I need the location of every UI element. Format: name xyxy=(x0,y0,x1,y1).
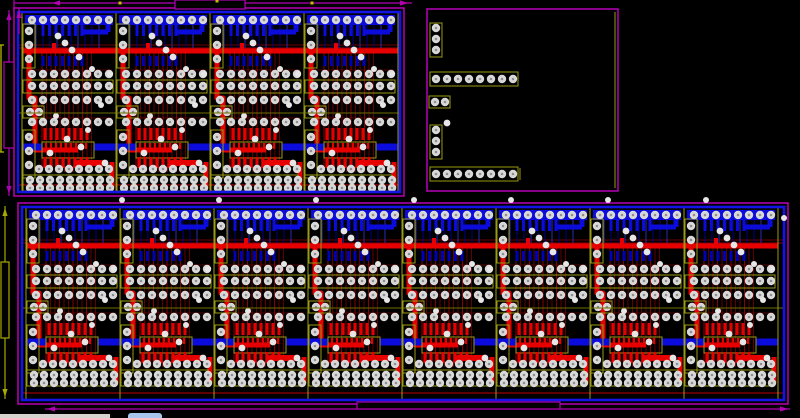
pad-hole xyxy=(741,374,744,377)
via[interactable] xyxy=(360,144,367,151)
pad-hole xyxy=(391,179,394,182)
pad-hole xyxy=(582,363,585,366)
via[interactable] xyxy=(623,228,630,235)
via[interactable] xyxy=(715,308,721,314)
via[interactable] xyxy=(465,322,471,328)
via[interactable] xyxy=(738,249,745,256)
pad-hole xyxy=(112,214,115,217)
via[interactable] xyxy=(335,113,341,119)
via[interactable] xyxy=(179,127,185,133)
pad-hole xyxy=(92,363,95,366)
via[interactable] xyxy=(268,249,275,256)
pad-hole xyxy=(654,214,657,217)
pad-hole xyxy=(297,187,300,190)
via[interactable] xyxy=(411,197,417,203)
via[interactable] xyxy=(273,127,279,133)
via[interactable] xyxy=(646,339,653,346)
pad-hole xyxy=(89,179,92,182)
via[interactable] xyxy=(250,40,257,47)
via[interactable] xyxy=(254,235,261,242)
via[interactable] xyxy=(119,197,125,203)
via[interactable] xyxy=(192,102,198,108)
pad-hole xyxy=(136,19,139,22)
via[interactable] xyxy=(760,297,766,303)
component-pad-pair-horizontal[interactable] xyxy=(429,96,450,108)
via[interactable] xyxy=(55,33,62,40)
pad-hole xyxy=(372,280,375,283)
pad-hole xyxy=(310,44,313,47)
via[interactable] xyxy=(621,308,627,314)
via[interactable] xyxy=(295,71,301,77)
via[interactable] xyxy=(339,308,345,314)
via[interactable] xyxy=(653,322,659,328)
via[interactable] xyxy=(747,322,753,328)
via[interactable] xyxy=(252,136,259,143)
pad-hole xyxy=(267,280,270,283)
pad-hole xyxy=(549,316,552,319)
via[interactable] xyxy=(630,235,637,242)
via[interactable] xyxy=(362,249,369,256)
via[interactable] xyxy=(371,322,377,328)
via[interactable] xyxy=(183,322,189,328)
pad-hole xyxy=(280,363,283,366)
pad-hole xyxy=(241,19,244,22)
pad-hole xyxy=(97,99,100,102)
pad-hole xyxy=(693,316,696,319)
via[interactable] xyxy=(76,54,83,61)
pcb-module[interactable] xyxy=(214,211,308,387)
via[interactable] xyxy=(469,261,475,267)
via[interactable] xyxy=(731,242,738,249)
pad-hole xyxy=(147,382,150,385)
pad-hole xyxy=(726,268,729,271)
pad-hole xyxy=(108,168,111,171)
pad-hole xyxy=(466,268,469,271)
component-header-8-horizontal[interactable] xyxy=(430,167,520,181)
via[interactable] xyxy=(380,102,386,108)
via[interactable] xyxy=(183,66,189,72)
pad-hole xyxy=(562,363,565,366)
pcb-module[interactable] xyxy=(304,16,398,192)
pad-hole xyxy=(477,214,480,217)
via[interactable] xyxy=(675,266,681,272)
via[interactable] xyxy=(666,297,672,303)
via[interactable] xyxy=(444,120,451,127)
via[interactable] xyxy=(508,197,514,203)
pad-hole xyxy=(435,140,438,143)
via[interactable] xyxy=(205,266,211,272)
via[interactable] xyxy=(333,345,340,352)
via[interactable] xyxy=(348,235,355,242)
pad-hole xyxy=(53,85,56,88)
via[interactable] xyxy=(384,160,391,167)
via[interactable] xyxy=(709,345,716,352)
pad-hole xyxy=(433,280,436,283)
pad-hole xyxy=(206,214,209,217)
pcb-module[interactable] xyxy=(684,211,778,387)
pad-hole xyxy=(582,316,585,319)
via[interactable] xyxy=(245,308,251,314)
via[interactable] xyxy=(264,54,271,61)
pad-hole xyxy=(180,121,183,124)
pad-hole xyxy=(715,280,718,283)
pad-hole xyxy=(241,374,244,377)
via[interactable] xyxy=(521,345,528,352)
bottom-left-height-dimension[interactable] xyxy=(1,206,9,399)
via[interactable] xyxy=(769,266,775,272)
via[interactable] xyxy=(68,331,75,338)
via[interactable] xyxy=(615,345,622,352)
pad-hole xyxy=(177,374,180,377)
pad-hole xyxy=(726,316,729,319)
via[interactable] xyxy=(196,160,203,167)
pad-hole xyxy=(125,73,128,76)
via[interactable] xyxy=(107,71,113,77)
via[interactable] xyxy=(82,339,89,346)
via[interactable] xyxy=(156,40,163,47)
via[interactable] xyxy=(717,228,724,235)
top-left-module-array[interactable] xyxy=(14,8,404,196)
pad-hole xyxy=(234,268,237,271)
pad-hole xyxy=(457,78,460,81)
via[interactable] xyxy=(147,113,153,119)
pad-hole xyxy=(206,294,209,297)
pad-hole xyxy=(310,136,313,139)
pcb-module[interactable] xyxy=(308,211,402,387)
via[interactable] xyxy=(145,345,152,352)
via[interactable] xyxy=(80,249,87,256)
via[interactable] xyxy=(73,242,80,249)
pad-hole xyxy=(636,363,639,366)
via[interactable] xyxy=(172,144,179,151)
pad-hole xyxy=(126,239,129,242)
via[interactable] xyxy=(149,33,156,40)
via[interactable] xyxy=(487,266,493,272)
pcb-module[interactable] xyxy=(26,211,120,387)
via[interactable] xyxy=(536,235,543,242)
via[interactable] xyxy=(724,235,731,242)
via[interactable] xyxy=(235,150,242,157)
via[interactable] xyxy=(51,345,58,352)
via[interactable] xyxy=(703,197,709,203)
pad-hole xyxy=(83,382,86,385)
via[interactable] xyxy=(299,266,305,272)
pad-hole xyxy=(435,38,438,41)
pad-hole xyxy=(129,214,132,217)
via[interactable] xyxy=(78,144,85,151)
pad-hole xyxy=(335,73,338,76)
via[interactable] xyxy=(151,308,157,314)
pad-hole xyxy=(617,374,620,377)
via[interactable] xyxy=(167,242,174,249)
via[interactable] xyxy=(160,235,167,242)
pcb-editor-canvas[interactable] xyxy=(0,0,800,418)
top-left-height-dimension[interactable] xyxy=(4,10,14,196)
via[interactable] xyxy=(286,102,292,108)
via[interactable] xyxy=(174,249,181,256)
pad-hole xyxy=(109,179,112,182)
via[interactable] xyxy=(93,261,99,267)
dimension-text-box[interactable] xyxy=(175,0,245,9)
pad-hole xyxy=(158,19,161,22)
pad-hole xyxy=(477,268,480,271)
pad-hole xyxy=(223,268,226,271)
via[interactable] xyxy=(163,47,170,54)
via[interactable] xyxy=(364,339,371,346)
via[interactable] xyxy=(57,308,63,314)
pad-hole xyxy=(444,268,447,271)
via[interactable] xyxy=(375,261,381,267)
via[interactable] xyxy=(196,297,202,303)
pad-hole xyxy=(643,294,646,297)
via[interactable] xyxy=(247,228,254,235)
pad-hole xyxy=(62,363,65,366)
pad-hole xyxy=(147,85,150,88)
via[interactable] xyxy=(637,242,644,249)
via[interactable] xyxy=(367,127,373,133)
pad-hole xyxy=(446,173,449,176)
via[interactable] xyxy=(644,249,651,256)
component-header-8-horizontal[interactable] xyxy=(430,72,518,86)
via[interactable] xyxy=(346,136,353,143)
pad-hole xyxy=(167,374,170,377)
via[interactable] xyxy=(277,66,283,72)
via[interactable] xyxy=(158,136,165,143)
pcb-module[interactable] xyxy=(116,16,210,192)
via[interactable] xyxy=(329,150,336,157)
pad-hole xyxy=(241,382,244,385)
pad-hole xyxy=(173,268,176,271)
via[interactable] xyxy=(111,266,117,272)
pad-hole xyxy=(151,316,154,319)
via[interactable] xyxy=(358,54,365,61)
via[interactable] xyxy=(442,235,449,242)
via[interactable] xyxy=(162,331,169,338)
via[interactable] xyxy=(389,71,395,77)
via[interactable] xyxy=(572,297,578,303)
pcb-module[interactable] xyxy=(590,211,684,387)
pad-hole xyxy=(741,382,744,385)
pad-hole xyxy=(365,382,368,385)
via[interactable] xyxy=(290,160,297,167)
via[interactable] xyxy=(478,297,484,303)
pad-hole xyxy=(503,374,506,377)
pad-hole xyxy=(516,268,519,271)
pad-hole xyxy=(32,253,35,256)
via[interactable] xyxy=(257,47,264,54)
via[interactable] xyxy=(281,261,287,267)
via[interactable] xyxy=(344,40,351,47)
via[interactable] xyxy=(176,339,183,346)
via[interactable] xyxy=(201,71,207,77)
pad-hole xyxy=(216,58,219,61)
via[interactable] xyxy=(538,331,545,338)
pcb-module[interactable] xyxy=(402,211,496,387)
via[interactable] xyxy=(64,136,71,143)
pad-hole xyxy=(384,363,387,366)
via[interactable] xyxy=(550,249,557,256)
via[interactable] xyxy=(527,308,533,314)
via[interactable] xyxy=(751,261,757,267)
via[interactable] xyxy=(261,242,268,249)
component-via[interactable] xyxy=(444,120,451,127)
top-right-breakout-board[interactable] xyxy=(427,9,618,191)
pcb-module[interactable] xyxy=(120,211,214,387)
via[interactable] xyxy=(605,197,611,203)
pad-hole xyxy=(35,294,38,297)
pad-hole xyxy=(449,374,452,377)
via[interactable] xyxy=(341,228,348,235)
via[interactable] xyxy=(187,261,193,267)
via[interactable] xyxy=(89,322,95,328)
pad-hole xyxy=(390,121,393,124)
via[interactable] xyxy=(552,339,559,346)
pad-hole xyxy=(502,359,505,362)
via[interactable] xyxy=(482,355,489,362)
pad-hole xyxy=(184,294,187,297)
pad-hole xyxy=(466,280,469,283)
via[interactable] xyxy=(153,228,160,235)
pad-hole xyxy=(53,382,56,385)
pad-hole xyxy=(479,173,482,176)
via[interactable] xyxy=(62,40,69,47)
via[interactable] xyxy=(59,228,66,235)
pad-hole xyxy=(321,179,324,182)
via[interactable] xyxy=(444,331,451,338)
component-header-3-vertical[interactable] xyxy=(430,23,442,57)
pad-hole xyxy=(183,187,186,190)
via[interactable] xyxy=(106,355,113,362)
pad-hole xyxy=(182,168,185,171)
via[interactable] xyxy=(670,355,677,362)
pad-hole xyxy=(513,374,516,377)
pad-hole xyxy=(191,99,194,102)
via[interactable] xyxy=(355,242,362,249)
via[interactable] xyxy=(350,331,357,338)
via[interactable] xyxy=(277,322,283,328)
via[interactable] xyxy=(458,339,465,346)
pcb-module[interactable] xyxy=(210,16,304,192)
via[interactable] xyxy=(576,355,583,362)
pad-hole xyxy=(285,85,288,88)
via[interactable] xyxy=(529,228,536,235)
via[interactable] xyxy=(290,297,296,303)
pad-hole xyxy=(599,280,602,283)
via[interactable] xyxy=(543,242,550,249)
via[interactable] xyxy=(256,331,263,338)
pad-hole xyxy=(234,280,237,283)
pad-hole xyxy=(191,121,194,124)
pad-hole xyxy=(748,316,751,319)
via[interactable] xyxy=(141,150,148,157)
pad-hole xyxy=(597,374,600,377)
pad-hole xyxy=(339,214,342,217)
pad-hole xyxy=(256,316,259,319)
via[interactable] xyxy=(200,355,207,362)
bottom-module-array[interactable] xyxy=(18,203,788,404)
dimension-text-box[interactable] xyxy=(4,62,14,148)
via[interactable] xyxy=(85,127,91,133)
pad-hole xyxy=(219,121,222,124)
panel-border xyxy=(427,9,618,191)
via[interactable] xyxy=(559,322,565,328)
via[interactable] xyxy=(371,66,377,72)
via[interactable] xyxy=(102,160,109,167)
pad-hole xyxy=(737,214,740,217)
via[interactable] xyxy=(66,235,73,242)
pad-hole xyxy=(444,101,447,104)
pad-hole xyxy=(621,214,624,217)
via[interactable] xyxy=(449,242,456,249)
via[interactable] xyxy=(98,102,104,108)
via[interactable] xyxy=(266,144,273,151)
pcb-module[interactable] xyxy=(22,16,116,192)
pad-hole xyxy=(202,168,205,171)
via[interactable] xyxy=(657,261,663,267)
via[interactable] xyxy=(435,228,442,235)
via[interactable] xyxy=(388,355,395,362)
pad-hole xyxy=(469,374,472,377)
component-header-3-vertical[interactable] xyxy=(430,125,442,159)
pcb-module[interactable] xyxy=(496,211,590,387)
pad-hole xyxy=(383,316,386,319)
pad-hole xyxy=(360,168,363,171)
via[interactable] xyxy=(563,261,569,267)
pad-hole xyxy=(75,85,78,88)
dimension-text-box[interactable] xyxy=(1,262,9,338)
via[interactable] xyxy=(47,150,54,157)
via[interactable] xyxy=(89,66,95,72)
via[interactable] xyxy=(427,345,434,352)
pad-hole xyxy=(340,168,343,171)
via[interactable] xyxy=(393,266,399,272)
via[interactable] xyxy=(243,33,250,40)
pad-hole xyxy=(505,316,508,319)
via[interactable] xyxy=(53,113,59,119)
via[interactable] xyxy=(337,33,344,40)
dimension-tick xyxy=(119,2,122,5)
pad-hole xyxy=(582,294,585,297)
pad-hole xyxy=(86,85,89,88)
via[interactable] xyxy=(740,339,747,346)
via[interactable] xyxy=(241,113,247,119)
via[interactable] xyxy=(102,297,108,303)
via[interactable] xyxy=(239,345,246,352)
via[interactable] xyxy=(433,308,439,314)
via[interactable] xyxy=(581,266,587,272)
via[interactable] xyxy=(69,47,76,54)
pad-hole xyxy=(690,345,693,348)
via[interactable] xyxy=(764,355,771,362)
via[interactable] xyxy=(726,331,733,338)
pad-hole xyxy=(643,280,646,283)
via[interactable] xyxy=(270,339,277,346)
via[interactable] xyxy=(456,249,463,256)
dimension-text-box[interactable] xyxy=(357,402,560,409)
via[interactable] xyxy=(170,54,177,61)
pad-hole xyxy=(383,280,386,283)
pad-hole xyxy=(379,99,382,102)
pad-hole xyxy=(237,187,240,190)
via[interactable] xyxy=(351,47,358,54)
via[interactable] xyxy=(384,297,390,303)
via[interactable] xyxy=(294,355,301,362)
via[interactable] xyxy=(781,215,787,221)
pad-hole xyxy=(143,179,146,182)
via[interactable] xyxy=(632,331,639,338)
via[interactable] xyxy=(216,197,222,203)
via[interactable] xyxy=(313,197,319,203)
